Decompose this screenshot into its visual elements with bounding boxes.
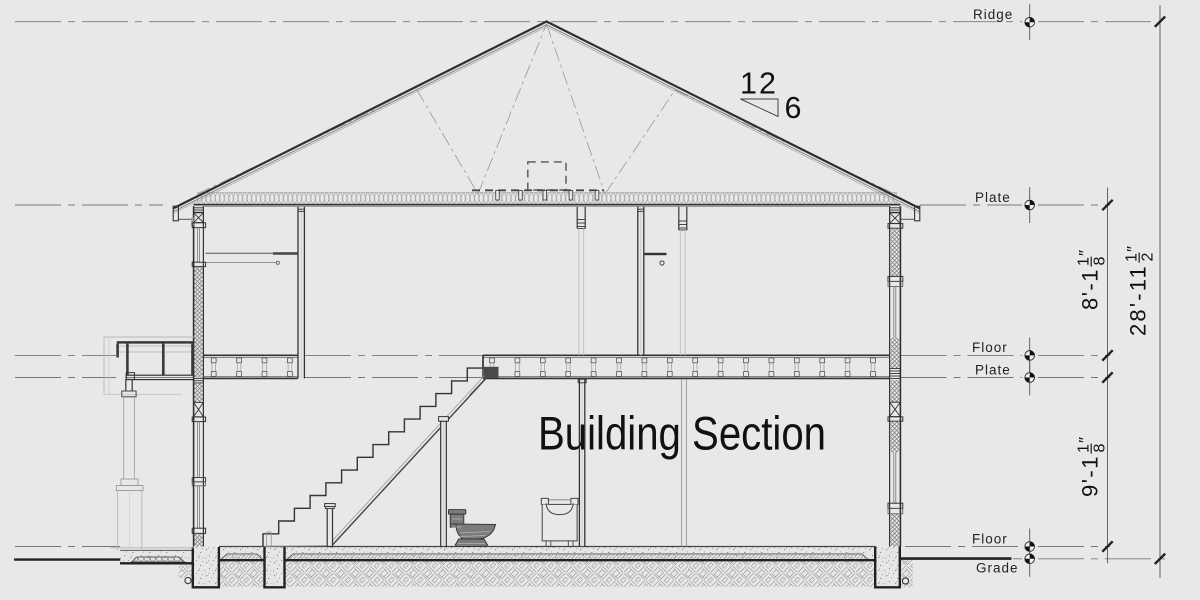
- svg-text:2: 2: [1140, 253, 1157, 262]
- svg-text:Plate: Plate: [975, 363, 1011, 378]
- svg-text:28'-11: 28'-11: [1126, 264, 1151, 336]
- svg-text:9'-1: 9'-1: [1078, 455, 1103, 497]
- svg-text:″: ″: [1076, 437, 1095, 443]
- svg-text:6: 6: [785, 91, 802, 125]
- svg-text:Building Section: Building Section: [538, 407, 826, 460]
- svg-text:8'-1: 8'-1: [1078, 268, 1103, 310]
- svg-text:Floor: Floor: [972, 340, 1008, 355]
- svg-text:12: 12: [740, 67, 778, 101]
- svg-text:1: 1: [1076, 257, 1093, 266]
- svg-text:1: 1: [1124, 253, 1141, 262]
- svg-text:″: ″: [1124, 246, 1143, 252]
- svg-text:1: 1: [1076, 444, 1093, 453]
- svg-text:Grade: Grade: [976, 561, 1019, 576]
- svg-text:″: ″: [1076, 250, 1095, 256]
- svg-text:Ridge: Ridge: [973, 7, 1013, 22]
- svg-text:Floor: Floor: [972, 531, 1008, 546]
- svg-text:8: 8: [1092, 444, 1109, 453]
- svg-text:8: 8: [1092, 257, 1109, 266]
- svg-text:Plate: Plate: [975, 190, 1011, 205]
